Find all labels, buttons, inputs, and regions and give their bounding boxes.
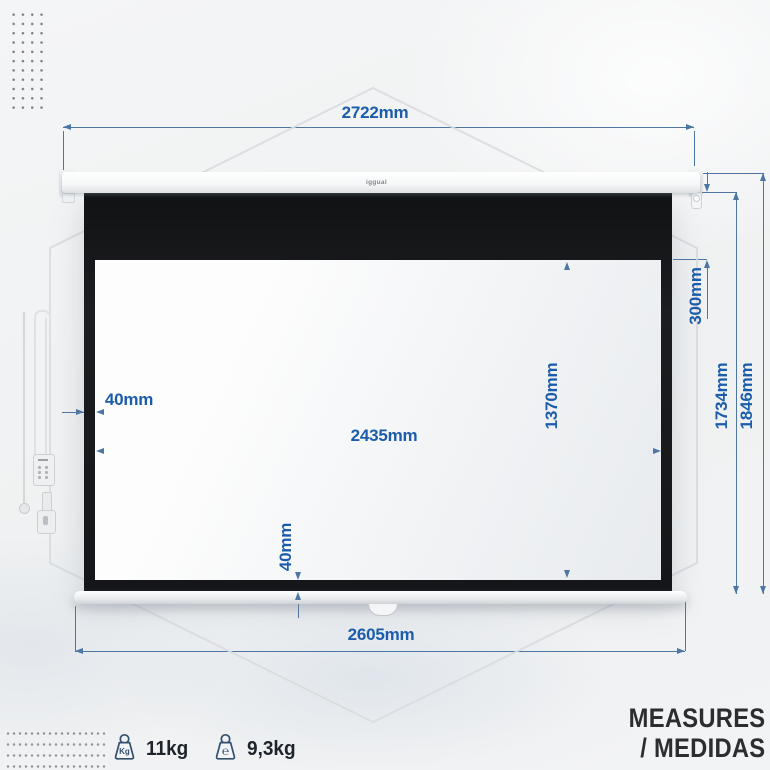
remote-label-line (38, 459, 48, 461)
casing-left-bracket (62, 193, 75, 203)
pull-cord-ball (19, 503, 30, 514)
hanging-strap-right (45, 318, 47, 455)
dim-label-bottom-border: 40mm (276, 523, 296, 571)
dim-label-top-border: 300mm (686, 267, 706, 325)
spec-weight-net: ℮ 9,3kg (212, 733, 382, 765)
pull-cord (23, 312, 25, 504)
projector-screen-dimension-diagram: iggual 2722mm 1846mm 1734mm 3 (0, 0, 770, 770)
heading-line-medidas: / MEDIDAS (628, 733, 765, 763)
svg-text:Kg: Kg (119, 747, 130, 756)
spec-weight-net-value: 9,3kg (247, 738, 296, 761)
weight-kg-icon: Kg (111, 733, 138, 762)
svg-text:℮: ℮ (222, 744, 229, 758)
weight-estimated-icon: ℮ (212, 733, 239, 762)
bracket-eyelet (693, 195, 700, 202)
dim-label-viewing-width: 2435mm (351, 426, 418, 446)
wall-bracket-slot (43, 516, 48, 525)
remote-buttons (36, 465, 50, 480)
brand-logo: iggual (366, 179, 387, 186)
dim-label-fabric-height: 1734mm (712, 363, 732, 430)
hanging-strap-left (34, 318, 36, 455)
screen-viewing-area (95, 260, 661, 580)
dim-label-case-width: 2722mm (342, 103, 409, 123)
dim-label-left-border: 40mm (105, 390, 153, 410)
dim-label-fabric-width: 2605mm (348, 625, 415, 645)
bottom-weight-slat (74, 591, 687, 604)
hanging-strap-arc (34, 310, 51, 322)
section-heading: MEASURES / MEDIDAS (628, 703, 765, 763)
spec-weight-gross-value: 11kg (146, 738, 188, 761)
dim-label-viewing-height: 1370mm (542, 363, 562, 430)
heading-line-measures: MEASURES (628, 703, 765, 733)
dim-label-total-height: 1846mm (737, 363, 757, 430)
